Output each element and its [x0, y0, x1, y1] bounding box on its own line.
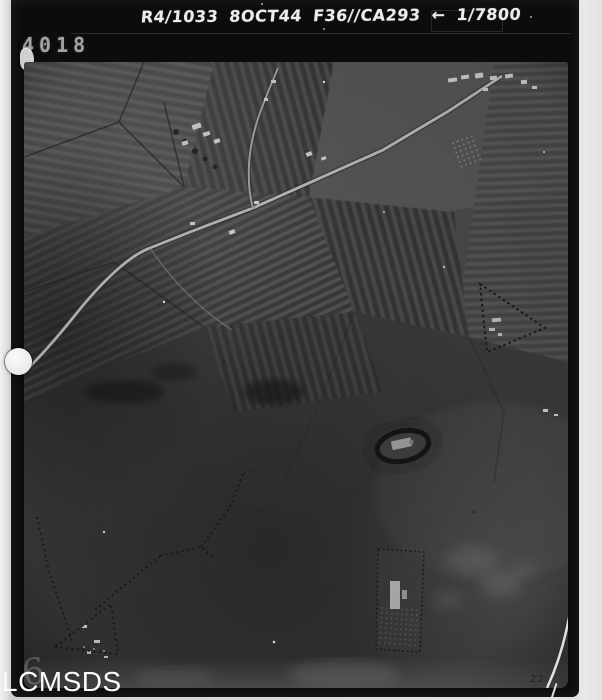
aerial-photograph: [24, 62, 568, 688]
vignette: [24, 62, 568, 688]
archive-watermark: LCMSDS: [2, 666, 122, 698]
dust-speck: [530, 16, 532, 18]
corner-numeral: 22: [530, 674, 545, 685]
scratch-line: [71, 33, 571, 34]
dust-speck: [261, 3, 263, 5]
dust-speck: [323, 28, 325, 30]
scanned-aerial-photo: R4/1033 8OCT44 F36//CA293 ← 1/7800 4018: [0, 0, 602, 700]
photo-canvas: [24, 62, 568, 688]
punch-hole: [5, 348, 32, 375]
sortie-annotation: R4/1033 8OCT44 F36//CA293 ← 1/7800: [140, 5, 522, 27]
